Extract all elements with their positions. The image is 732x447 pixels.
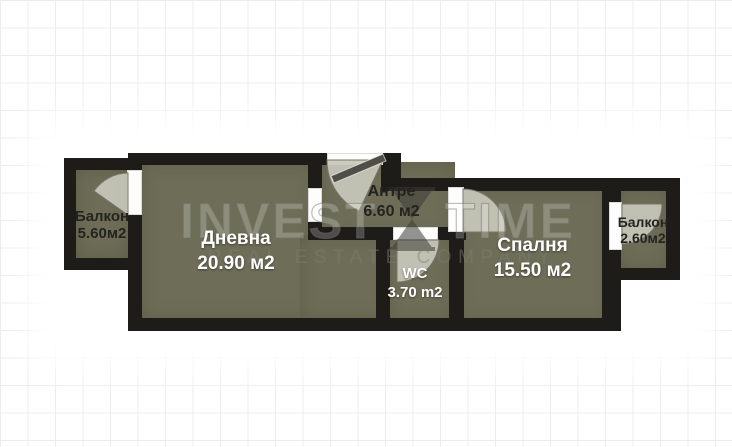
room-area: 20.90 м2 <box>166 251 306 276</box>
entrance-door-opening <box>327 153 383 165</box>
room-area: 3.70 m2 <box>384 283 446 302</box>
room-area: 15.50 м2 <box>460 258 605 283</box>
room-name: Спалня <box>460 233 605 258</box>
room-area: 6.60 м2 <box>344 202 439 222</box>
wall-balcony-right-bottom <box>602 268 680 280</box>
balcony-right-label: Балкон 2.60м2 <box>617 214 669 246</box>
room-name: Балкон <box>617 214 669 230</box>
balcony-left-label: Балкон 5.60м2 <box>70 208 134 242</box>
wall-bottom <box>128 318 621 331</box>
room-name: Антре <box>344 182 439 202</box>
bedroom-label: Спалня 15.50 м2 <box>460 233 605 283</box>
room-name: WC <box>384 264 446 283</box>
room-name: Балкон <box>70 208 134 225</box>
floor-plan-canvas: INVEST TIME REAL ESTATE COMPANY Балкон 5… <box>0 0 732 447</box>
wc-label: WC 3.70 m2 <box>384 264 446 302</box>
entry-hall-label: Антре 6.60 м2 <box>344 182 439 222</box>
room-name: Дневна <box>166 226 306 251</box>
room-area: 5.60м2 <box>70 225 134 242</box>
room-area: 2.60м2 <box>617 230 669 246</box>
living-room-label: Дневна 20.90 м2 <box>166 226 306 276</box>
